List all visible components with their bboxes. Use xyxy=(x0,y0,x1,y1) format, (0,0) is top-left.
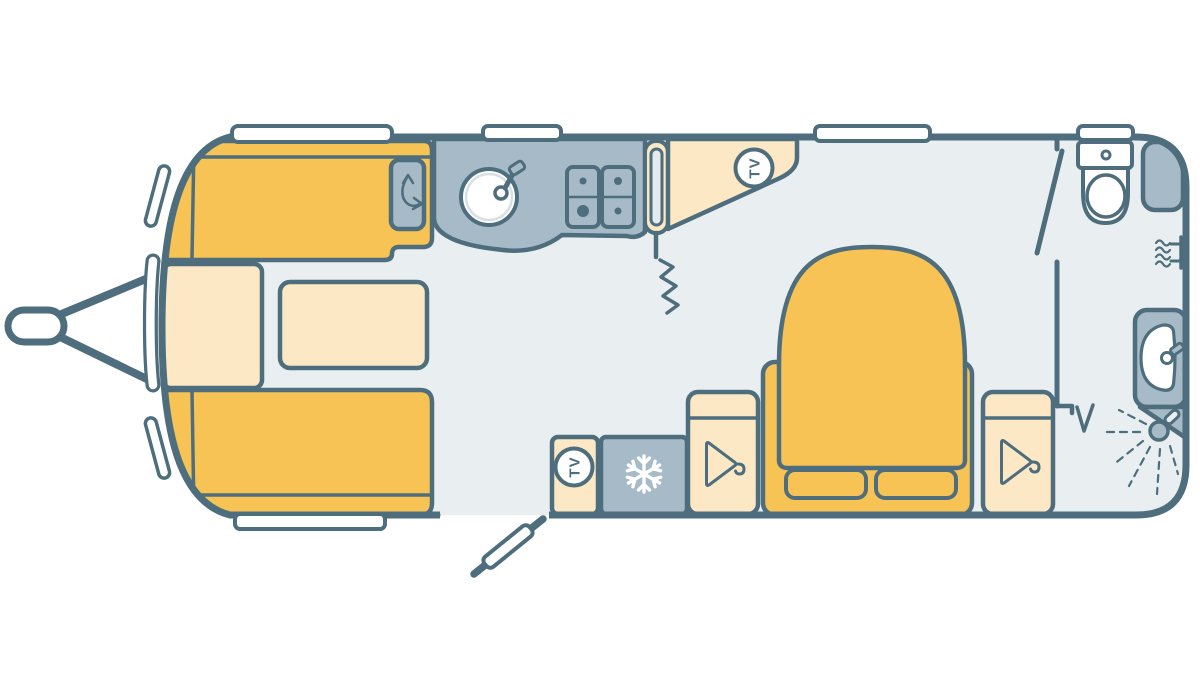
window-bedroom xyxy=(815,126,930,141)
tv-label: TV xyxy=(567,456,584,477)
tv-cabinet: TV xyxy=(552,437,598,514)
gas-locker-band xyxy=(150,261,153,385)
caravan-floorplan: TV xyxy=(0,0,1200,700)
swivel-storage-locker xyxy=(391,160,424,229)
wardrobe-left xyxy=(688,392,758,514)
front-lounge xyxy=(163,141,432,515)
toilet xyxy=(1078,142,1132,223)
interior-door-slot xyxy=(651,149,662,225)
window-kitchen xyxy=(483,126,561,140)
window-lounge-bottom xyxy=(235,514,385,529)
toilet-cistern xyxy=(1078,142,1132,168)
tv-point-front: TV xyxy=(736,150,773,187)
shower-head-icon xyxy=(1150,422,1168,440)
hitch-bar-upper xyxy=(52,276,153,318)
wardrobe-right xyxy=(983,392,1053,514)
tv-label: TV xyxy=(747,157,764,178)
island-bed-mattress xyxy=(779,247,965,468)
fridge xyxy=(601,437,687,514)
hitch-bar-lower xyxy=(52,333,153,382)
window-washroom xyxy=(1078,126,1133,140)
lounge-table xyxy=(280,282,427,368)
washbasin xyxy=(1135,310,1186,407)
tv-point-mid: TV xyxy=(556,449,593,486)
burner-large xyxy=(577,205,589,217)
tow-hitch xyxy=(8,261,153,385)
four-burner-hob xyxy=(567,167,634,227)
pillow-left xyxy=(786,470,866,498)
burner xyxy=(615,208,622,215)
front-chest-seat xyxy=(163,264,262,388)
pillow-right xyxy=(876,470,956,498)
burner xyxy=(614,177,622,185)
burner xyxy=(580,178,587,185)
hitch-head xyxy=(8,310,64,342)
window-front-lounge xyxy=(232,126,392,142)
toilet-bowl xyxy=(1087,175,1125,217)
window-front-corner-top xyxy=(144,165,171,228)
basin-tap-icon xyxy=(1162,353,1173,364)
